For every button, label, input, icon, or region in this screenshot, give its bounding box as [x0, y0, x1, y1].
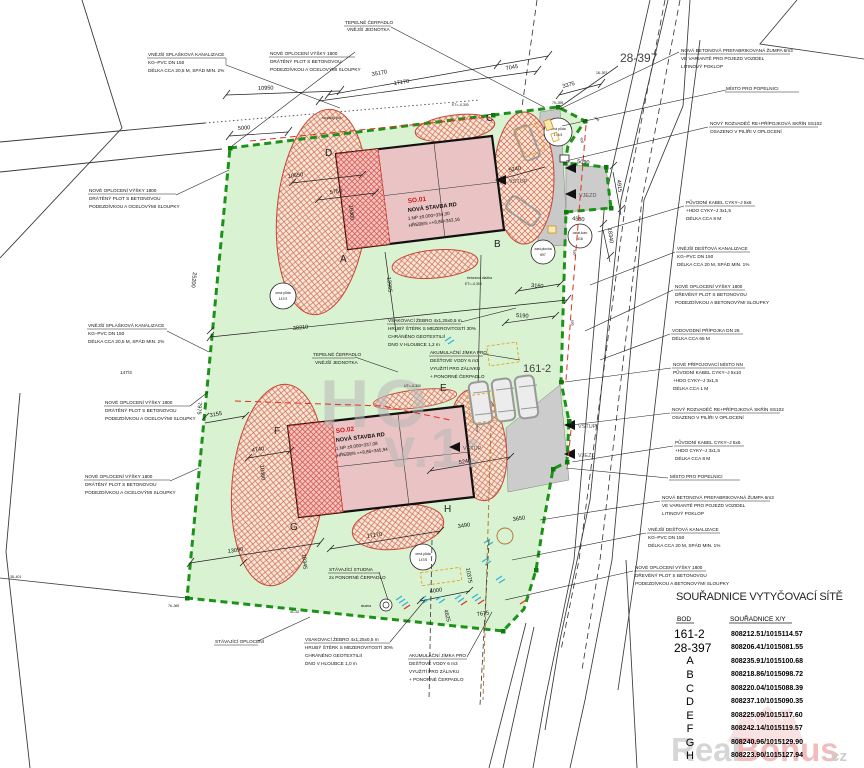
svg-text:NOVÉ OPLOCENÍ VÝŠKY 1800: NOVÉ OPLOCENÍ VÝŠKY 1800: [270, 50, 338, 56]
svg-text:H: H: [444, 504, 451, 515]
svg-text:DRÁTĚNÝ PLOT S BETONOVOU: DRÁTĚNÝ PLOT S BETONOVOU: [270, 57, 342, 64]
svg-text:808218.86/1015098.72: 808218.86/1015098.72: [731, 671, 803, 678]
svg-text:697: 697: [540, 253, 546, 257]
svg-text:KG–PVC DN 150: KG–PVC DN 150: [677, 254, 714, 259]
svg-text:VE VARIANTĚ PRO POJEZD VOZIDEL: VE VARIANTĚ PRO POJEZD VOZIDEL: [662, 501, 746, 508]
svg-text:DŘEVĚNÝ PLOT S BETONOVOU: DŘEVĚNÝ PLOT S BETONOVOU: [635, 571, 707, 578]
svg-text:VSTUP: VSTUP: [509, 179, 528, 185]
svg-text:F: F: [687, 723, 694, 735]
svg-text:KG–PVC DN 150: KG–PVC DN 150: [88, 331, 125, 336]
svg-text:808212.51/1015114.57: 808212.51/1015114.57: [731, 631, 803, 638]
svg-text:PODEZDÍVKOU A OCELOVÝMI SLOUPK: PODEZDÍVKOU A OCELOVÝMI SLOUPKY: [270, 66, 362, 72]
svg-text:KG–PVC DN 150: KG–PVC DN 150: [148, 60, 185, 65]
svg-text:PODEZDÍVKOU A OCELOVÝMI SLOUPK: PODEZDÍVKOU A OCELOVÝMI SLOUPKY: [105, 415, 197, 421]
svg-text:TEPELNÉ ČERPADLO: TEPELNÉ ČERPADLO: [345, 19, 393, 25]
svg-text:DNO V HLOUBCE 1,0 m: DNO V HLOUBCE 1,0 m: [305, 661, 357, 666]
svg-text:PODEZDÍVKOU A BETONOVÝMI SLOUP: PODEZDÍVKOU A BETONOVÝMI SLOUPKY: [675, 299, 770, 305]
svg-text:147/5: 147/5: [419, 558, 428, 562]
svg-text:VNĚJŠÍ DEŠŤOVÁ KANALIZACE: VNĚJŠÍ DEŠŤOVÁ KANALIZACE: [648, 525, 719, 532]
svg-text:B: B: [494, 239, 501, 250]
svg-text:76–369: 76–369: [168, 604, 179, 608]
svg-text:MÍSTO PRO POPELNICI: MÍSTO PRO POPELNICI: [726, 85, 779, 91]
svg-text:500: 500: [570, 320, 574, 326]
svg-text:E: E: [440, 383, 447, 394]
svg-text:orná půda: orná půda: [275, 291, 290, 295]
svg-text:G: G: [290, 522, 298, 533]
svg-text:PŮVODNÍ KABEL CYKY–J 5x10: PŮVODNÍ KABEL CYKY–J 5x10: [673, 369, 741, 375]
svg-text:DÉLKA CCA 1 M: DÉLKA CCA 1 M: [673, 385, 708, 391]
svg-text:PODEZDÍVKOU A OCELOVÝMI SLOUPK: PODEZDÍVKOU A OCELOVÝMI SLOUPKY: [89, 203, 181, 209]
svg-text:DÉLKA CCA 65 M: DÉLKA CCA 65 M: [672, 335, 710, 341]
svg-text:VNĚJŠÍ JEDNOTKA: VNĚJŠÍ JEDNOTKA: [315, 358, 359, 365]
svg-text:808225.09/1015117.60: 808225.09/1015117.60: [731, 712, 803, 719]
svg-text:NOVÉ OPLOCENÍ VÝŠKY 1800: NOVÉ OPLOCENÍ VÝŠKY 1800: [675, 283, 743, 289]
svg-text:VNĚJŠÍ SPLAŠKOVÁ KANALIZACE: VNĚJŠÍ SPLAŠKOVÁ KANALIZACE: [88, 321, 164, 328]
svg-text:STÁVAJÍCÍ STUDNA: STÁVAJÍCÍ STUDNA: [329, 566, 374, 572]
svg-text:PŮVODNÍ KABEL CYKY–J 5x6: PŮVODNÍ KABEL CYKY–J 5x6: [675, 439, 741, 445]
svg-text:VYUŽITÍ PRO ZÁLIVKU: VYUŽITÍ PRO ZÁLIVKU: [409, 667, 460, 674]
svg-text:DNO V HLOUBCE 1,2 m: DNO V HLOUBCE 1,2 m: [388, 342, 440, 347]
svg-text:DEŠŤOVÉ VODY 6 m3: DEŠŤOVÉ VODY 6 m3: [409, 659, 458, 666]
svg-text:NOVÝ ROZVADĚČ RE+PŘÍPOJKOVÁ SK: NOVÝ ROZVADĚČ RE+PŘÍPOJKOVÁ SKŘÍN SS102: [672, 405, 784, 412]
svg-text:+ PONORNÉ ČERPADLO: + PONORNÉ ČERPADLO: [409, 676, 464, 682]
svg-text:808220.04/1015088.39: 808220.04/1015088.39: [731, 685, 803, 692]
svg-text:TEPELNÉ ČERPADLO: TEPELNÉ ČERPADLO: [313, 351, 361, 357]
svg-text:DÉLKA CCA 20,5 M, SPÁD MIN. 2%: DÉLKA CCA 20,5 M, SPÁD MIN. 2%: [88, 338, 164, 344]
svg-text:PŮVODNÍ KABEL CYKY–J 5x6: PŮVODNÍ KABEL CYKY–J 5x6: [686, 199, 752, 205]
svg-text:+HDO CYKY–J 3x1,5: +HDO CYKY–J 3x1,5: [686, 208, 731, 213]
svg-text:SOUŘADNICE VYTYČOVACÍ SÍTĚ: SOUŘADNICE VYTYČOVACÍ SÍTĚ: [676, 590, 843, 603]
svg-text:808237.10/1015090.35: 808237.10/1015090.35: [731, 698, 803, 705]
svg-text:VJEZD: VJEZD: [578, 453, 595, 459]
svg-text:NOVÝ ROZVADĚČ RE+PŘÍPOJKOVÁ SK: NOVÝ ROZVADĚČ RE+PŘÍPOJKOVÁ SKŘÍN SS102: [710, 119, 822, 126]
svg-text:AKUMULAČNÍ JÍMKA PRO: AKUMULAČNÍ JÍMKA PRO: [430, 349, 487, 355]
svg-text:161-2: 161-2: [674, 627, 705, 641]
svg-text:HRUBÝ ŠTĚRK S MEZEROVITOSTÍ 30: HRUBÝ ŠTĚRK S MEZEROVITOSTÍ 30%: [388, 324, 476, 331]
svg-text:147/2: 147/2: [279, 297, 288, 301]
svg-text:Real: Real: [671, 731, 741, 768]
svg-text:BOD: BOD: [677, 616, 691, 623]
svg-text:DŘEVĚNÝ PLOT S BETONOVOU: DŘEVĚNÝ PLOT S BETONOVOU: [675, 290, 747, 297]
svg-text:OSAZENO V PILÍŘI V OPLOCENÍ: OSAZENO V PILÍŘI V OPLOCENÍ: [672, 413, 744, 420]
svg-text:41–52: 41–52: [290, 610, 300, 614]
svg-text:808235.91/1015100.68: 808235.91/1015100.68: [731, 658, 803, 665]
svg-text:A: A: [340, 254, 347, 265]
svg-text:UT=–0,300: UT=–0,300: [404, 384, 421, 388]
svg-text:NOVÁ BETONOVÁ PREFABRIKOVANÁ Ž: NOVÁ BETONOVÁ PREFABRIKOVANÁ ŽUMPA 6m3: [681, 46, 793, 53]
svg-text:ET=–0,300: ET=–0,300: [452, 103, 469, 107]
svg-text:DEŠŤOVÉ VODY 6 m3: DEŠŤOVÉ VODY 6 m3: [430, 356, 479, 363]
svg-text:C: C: [686, 683, 694, 695]
svg-text:Bonus: Bonus: [736, 731, 839, 768]
svg-text:VSTUP: VSTUP: [578, 424, 597, 430]
svg-text:2x PONORNÉ ČERPADLO: 2x PONORNÉ ČERPADLO: [329, 574, 386, 580]
svg-text:NOVÉ OPLOCENÍ VÝŠKY 1800: NOVÉ OPLOCENÍ VÝŠKY 1800: [89, 187, 157, 193]
svg-text:CHRÁNĚNO GEOTEXTILIÍ: CHRÁNĚNO GEOTEXTILIÍ: [388, 332, 446, 339]
svg-text:5000: 5000: [238, 125, 251, 132]
svg-text:F: F: [274, 426, 280, 437]
svg-text:betonová dlažba: betonová dlažba: [467, 276, 492, 280]
svg-text:D: D: [686, 696, 694, 708]
svg-text:NOVÉ PŘÍPOJOVACÍ MÍSTO NN: NOVÉ PŘÍPOJOVACÍ MÍSTO NN: [673, 360, 743, 367]
svg-text:28-397: 28-397: [674, 641, 712, 655]
svg-text:NOVÉ OPLOCENÍ VÝŠKY 1800: NOVÉ OPLOCENÍ VÝŠKY 1800: [635, 564, 703, 570]
svg-text:NOVÉ OPLOCENÍ VÝŠKY 1800: NOVÉ OPLOCENÍ VÝŠKY 1800: [105, 399, 173, 405]
svg-text:NOVÁ BETONOVÁ PREFABRIKOVANÁ Ž: NOVÁ BETONOVÁ PREFABRIKOVANÁ ŽUMPA 6m3: [662, 493, 774, 500]
svg-text:ET=–0,300: ET=–0,300: [465, 282, 482, 286]
svg-text:MÍSTO PRO POPELNICI: MÍSTO PRO POPELNICI: [670, 473, 723, 479]
svg-text:ostat.kom: ostat.kom: [573, 231, 588, 235]
svg-text:DRÁTĚNÝ PLOT S BETONOVOU: DRÁTĚNÝ PLOT S BETONOVOU: [89, 194, 161, 201]
svg-text:DÉLKA CCA 8 M: DÉLKA CCA 8 M: [675, 455, 710, 461]
svg-text:LITINOVÝ POKLOP: LITINOVÝ POKLOP: [681, 63, 723, 69]
svg-text:28-397: 28-397: [620, 51, 658, 65]
svg-text:808240.96/1015129.90: 808240.96/1015129.90: [731, 739, 803, 746]
svg-text:NOVÉ OPLOCENÍ VÝŠKY 1800: NOVÉ OPLOCENÍ VÝŠKY 1800: [85, 473, 153, 479]
svg-text:18–397: 18–397: [596, 71, 607, 75]
svg-text:VSAKOVACÍ ŽEBRO 4x1,25x0,5 m: VSAKOVACÍ ŽEBRO 4x1,25x0,5 m: [388, 316, 462, 323]
svg-text:7975: 7975: [195, 402, 202, 415]
svg-text:AKUMULAČNÍ JÍMKA PRO: AKUMULAČNÍ JÍMKA PRO: [409, 652, 466, 658]
svg-text:HRUBÝ ŠTĚRK S MEZEROVITOSTÍ 30: HRUBÝ ŠTĚRK S MEZEROVITOSTÍ 30%: [305, 643, 393, 650]
svg-text:.cz: .cz: [827, 748, 847, 765]
svg-text:+ PONORNÉ ČERPADLO: + PONORNÉ ČERPADLO: [430, 373, 485, 379]
svg-text:38–401: 38–401: [10, 575, 21, 579]
svg-text:79–395: 79–395: [552, 101, 563, 105]
svg-text:VSTUP: VSTUP: [463, 446, 482, 452]
svg-text:5190: 5190: [516, 313, 529, 320]
svg-text:DÉLKA CCA 8 M: DÉLKA CCA 8 M: [686, 215, 721, 221]
svg-text:STÁVAJÍCÍ OPLOCENÍ: STÁVAJÍCÍ OPLOCENÍ: [215, 638, 265, 644]
svg-text:DÉLKA CCA 20 M, SPÁD MIN. 1%: DÉLKA CCA 20 M, SPÁD MIN. 1%: [677, 261, 749, 267]
svg-text:147/3: 147/3: [120, 370, 132, 375]
svg-text:rozpadlý plot: rozpadlý plot: [322, 116, 341, 120]
svg-text:PODEZDÍVKOU A OCELOVÝMI SLOUPK: PODEZDÍVKOU A OCELOVÝMI SLOUPKY: [85, 489, 177, 495]
svg-text:808223.90/1015127.94: 808223.90/1015127.94: [731, 752, 803, 759]
svg-text:VODOVODNÍ PŘÍPOJKA DN 25: VODOVODNÍ PŘÍPOJKA DN 25: [672, 326, 740, 333]
svg-text:VJEZD: VJEZD: [579, 193, 596, 199]
svg-text:808206.41/1015081.55: 808206.41/1015081.55: [731, 644, 803, 651]
svg-text:VYUŽITÍ PRO ZÁLIVKU: VYUŽITÍ PRO ZÁLIVKU: [430, 364, 481, 371]
svg-text:418: 418: [577, 237, 583, 241]
svg-text:DRÁTĚNÝ PLOT S BETONOVOU: DRÁTĚNÝ PLOT S BETONOVOU: [105, 406, 177, 413]
svg-text:studna: studna: [361, 604, 371, 608]
svg-text:G: G: [686, 737, 695, 749]
svg-text:zast.plocha: zast.plocha: [534, 247, 551, 251]
svg-text:VNĚJŠÍ SPLAŠKOVÁ KANALIZACE: VNĚJŠÍ SPLAŠKOVÁ KANALIZACE: [148, 50, 224, 57]
svg-text:VE VARIANTĚ PRO POJEZD VOZIDEL: VE VARIANTĚ PRO POJEZD VOZIDEL: [681, 54, 765, 61]
svg-text:VSAKOVACÍ ŽEBRO 4x1,25x0,5 m: VSAKOVACÍ ŽEBRO 4x1,25x0,5 m: [305, 635, 379, 642]
svg-text:CHRÁNĚNO GEOTEXTILIÍ: CHRÁNĚNO GEOTEXTILIÍ: [305, 651, 363, 658]
svg-text:+HDO CYKY–J 3x1,5: +HDO CYKY–J 3x1,5: [673, 378, 718, 383]
svg-text:E: E: [686, 710, 693, 722]
svg-text:D: D: [325, 148, 332, 159]
svg-text:SOUŘADNICE X/Y: SOUŘADNICE X/Y: [730, 614, 786, 623]
svg-text:OSAZENO V PILÍŘI V OPLOCENÍ: OSAZENO V PILÍŘI V OPLOCENÍ: [710, 127, 782, 134]
svg-text:161-2: 161-2: [523, 363, 551, 375]
svg-text:+HDO CYKY–J 3x1,5: +HDO CYKY–J 3x1,5: [675, 448, 720, 453]
svg-text:B: B: [686, 669, 693, 681]
svg-text:PODEZDÍVKOU A BETONOVÝMI SLOUP: PODEZDÍVKOU A BETONOVÝMI SLOUPKY: [635, 580, 730, 586]
svg-text:500: 500: [572, 250, 576, 256]
svg-text:orná půda: orná půda: [415, 552, 430, 556]
svg-text:KG–PVC DN 150: KG–PVC DN 150: [648, 535, 685, 540]
svg-text:H: H: [686, 750, 694, 762]
svg-text:DÉLKA CCA 20,5 M, SPÁD MIN. 2%: DÉLKA CCA 20,5 M, SPÁD MIN. 2%: [148, 67, 224, 73]
svg-text:DÉLKA CCA 20 M, SPÁD MIN. 1%: DÉLKA CCA 20 M, SPÁD MIN. 1%: [648, 542, 720, 548]
svg-text:A: A: [686, 655, 694, 667]
svg-text:DRÁTĚNÝ PLOT S BETONOVOU: DRÁTĚNÝ PLOT S BETONOVOU: [85, 480, 157, 487]
svg-text:10950: 10950: [258, 85, 274, 92]
svg-text:LITINOVÝ POKLOP: LITINOVÝ POKLOP: [662, 510, 704, 516]
svg-text:808242.14/1015119.57: 808242.14/1015119.57: [731, 725, 803, 732]
svg-text:VNĚJŠÍ DEŠŤOVÁ KANALIZACE: VNĚJŠÍ DEŠŤOVÁ KANALIZACE: [677, 244, 748, 251]
